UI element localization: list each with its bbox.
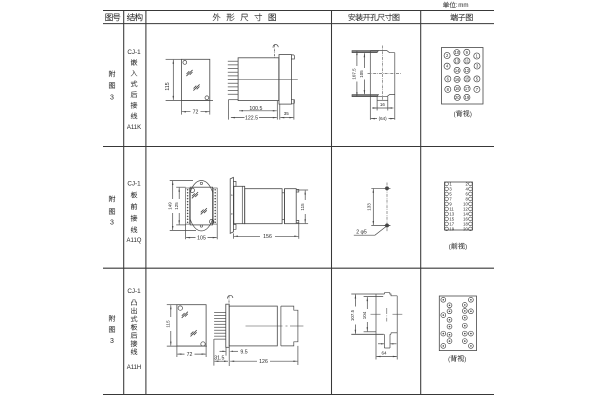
svg-text:126: 126	[259, 359, 268, 365]
svg-text:(: (	[448, 357, 450, 363]
svg-text:18: 18	[455, 86, 460, 91]
svg-text:7: 7	[476, 87, 479, 92]
svg-text:100.5: 100.5	[249, 106, 262, 112]
svg-text:105: 105	[359, 70, 364, 78]
svg-text:105: 105	[197, 236, 206, 242]
svg-text:107.5: 107.5	[350, 309, 355, 321]
svg-text:A11K: A11K	[127, 125, 141, 131]
svg-text:10: 10	[455, 50, 460, 55]
svg-text:8: 8	[447, 87, 450, 92]
svg-text:): )	[465, 245, 467, 251]
svg-text:(: (	[449, 245, 451, 251]
svg-text:115: 115	[166, 320, 171, 328]
svg-text:35: 35	[284, 111, 290, 116]
svg-text:9: 9	[466, 50, 469, 55]
svg-text:3: 3	[476, 64, 479, 69]
svg-text:3: 3	[110, 95, 114, 102]
svg-text:16: 16	[380, 102, 386, 107]
svg-text:31.5: 31.5	[214, 355, 224, 361]
svg-text:19: 19	[465, 95, 470, 100]
svg-text:3: 3	[110, 220, 114, 227]
svg-text:A11Q: A11Q	[127, 238, 142, 244]
svg-text:mm: mm	[458, 2, 468, 9]
svg-text:CJ-1: CJ-1	[127, 181, 141, 188]
svg-text:20: 20	[455, 95, 460, 100]
svg-text:133: 133	[367, 203, 372, 211]
svg-text:6: 6	[447, 76, 450, 81]
svg-text:13: 13	[455, 58, 460, 63]
svg-text:9.5: 9.5	[240, 349, 247, 355]
svg-text:(64): (64)	[379, 116, 388, 121]
svg-text:2 φ5: 2 φ5	[356, 230, 367, 236]
svg-text:72: 72	[193, 109, 199, 115]
svg-text:104: 104	[362, 311, 367, 319]
svg-text:115: 115	[165, 82, 171, 90]
svg-text:11: 11	[465, 58, 470, 63]
svg-text:2: 2	[446, 53, 449, 58]
svg-text:115: 115	[300, 203, 305, 211]
svg-text:149: 149	[168, 202, 173, 210]
svg-text:16: 16	[455, 77, 460, 82]
svg-text:CJ-1: CJ-1	[127, 49, 141, 56]
svg-text:156: 156	[263, 234, 272, 240]
svg-text:20: 20	[463, 226, 468, 231]
svg-text:(: (	[454, 112, 456, 118]
svg-text:5: 5	[476, 76, 479, 81]
svg-text:): )	[470, 112, 472, 118]
svg-text:17: 17	[465, 86, 470, 91]
svg-text:14: 14	[455, 68, 460, 73]
svg-text:CJ-1: CJ-1	[127, 288, 141, 295]
svg-text:A11H: A11H	[127, 365, 142, 371]
svg-text:15: 15	[465, 76, 470, 81]
svg-text:): )	[464, 357, 466, 363]
svg-text:122.5: 122.5	[245, 115, 258, 121]
svg-text:3: 3	[110, 338, 114, 345]
svg-text:12: 12	[465, 68, 470, 73]
svg-text:107.5: 107.5	[352, 68, 357, 80]
svg-text:64: 64	[381, 350, 387, 355]
svg-text:4: 4	[446, 64, 449, 69]
svg-text:1: 1	[476, 54, 479, 59]
svg-text:19: 19	[449, 226, 454, 231]
svg-text:72: 72	[187, 352, 193, 358]
svg-text:125: 125	[174, 202, 179, 210]
